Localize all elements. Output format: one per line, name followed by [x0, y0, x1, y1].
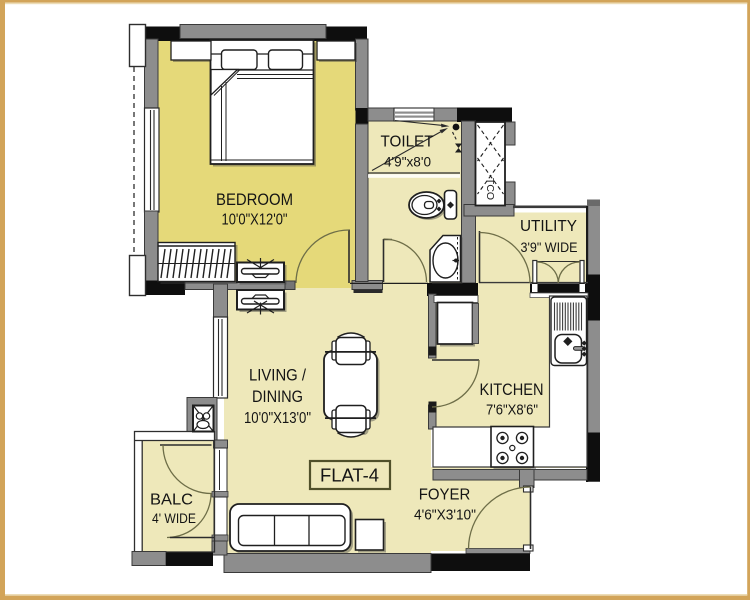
svg-text:FLAT-4: FLAT-4	[320, 466, 379, 486]
svg-text:10'0"X13'0": 10'0"X13'0"	[244, 410, 311, 427]
svg-text:DINING: DINING	[252, 387, 303, 406]
svg-text:3'9" WIDE: 3'9" WIDE	[521, 239, 578, 255]
svg-text:TOILET: TOILET	[381, 134, 435, 151]
svg-text:4'6"X3'10": 4'6"X3'10"	[414, 508, 476, 524]
svg-text:4'9"x8'0: 4'9"x8'0	[384, 154, 431, 170]
svg-text:4' WIDE: 4' WIDE	[152, 511, 196, 526]
svg-text:LIVING /: LIVING /	[249, 366, 306, 385]
svg-text:UTILITY: UTILITY	[520, 218, 577, 235]
svg-text:BEDROOM: BEDROOM	[216, 190, 293, 209]
svg-text:TCO: TCO	[484, 178, 496, 200]
svg-text:FOYER: FOYER	[419, 487, 471, 504]
svg-text:7'6"X8'6": 7'6"X8'6"	[486, 402, 538, 418]
svg-text:KITCHEN: KITCHEN	[480, 381, 544, 399]
svg-text:BALC: BALC	[150, 492, 193, 509]
svg-text:10'0"X12'0": 10'0"X12'0"	[222, 211, 288, 228]
